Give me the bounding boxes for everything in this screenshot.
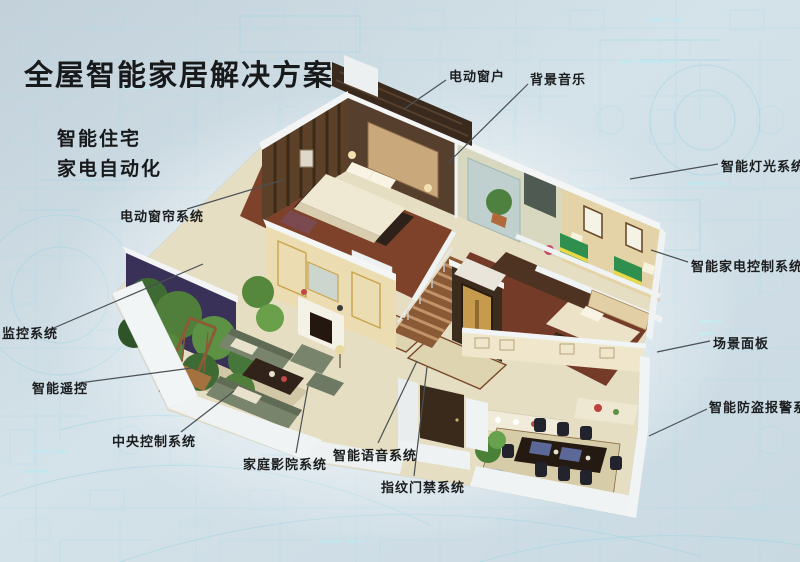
kettle [594,404,602,412]
callout-appliance-control: 智能家电控制系统 [691,256,800,275]
potted-plant [486,189,512,215]
subtitle-line2: 家电自动化 [57,154,162,181]
callout-smart-remote: 智能遥控 [32,378,88,397]
vase [301,289,307,295]
front-door [420,385,464,448]
callout-home-theater: 家庭影院系统 [243,454,327,473]
callout-smart-lighting: 智能灯光系统 [721,156,800,175]
callout-fingerprint-access: 指纹门禁系统 [381,477,465,496]
callout-scene-panel: 场景面板 [713,333,769,352]
callout-electric-curtain: 电动窗帘系统 [120,206,204,225]
bedside-lamp [424,184,432,192]
callout-burglar-alarm: 智能防盗报警系统 [709,397,800,416]
floor-lamp [335,345,345,355]
callout-background-music: 背景音乐 [530,69,586,88]
callout-monitoring: 监控系统 [2,323,58,342]
callout-electric-window: 电动窗户 [449,66,505,85]
callout-central-control: 中央控制系统 [112,431,196,450]
callout-voice-system: 智能语音系统 [333,445,417,464]
bedside-lamp [348,151,356,159]
page-title: 全屋智能家居解决方案 [24,52,334,94]
poster: 全屋智能家居解决方案 智能住宅 家电自动化 电动窗户 背景音乐 智能灯光系统 智… [0,0,800,562]
framed-picture [300,150,313,167]
subtitle-line1: 智能住宅 [57,124,141,151]
door-handle [455,418,458,421]
